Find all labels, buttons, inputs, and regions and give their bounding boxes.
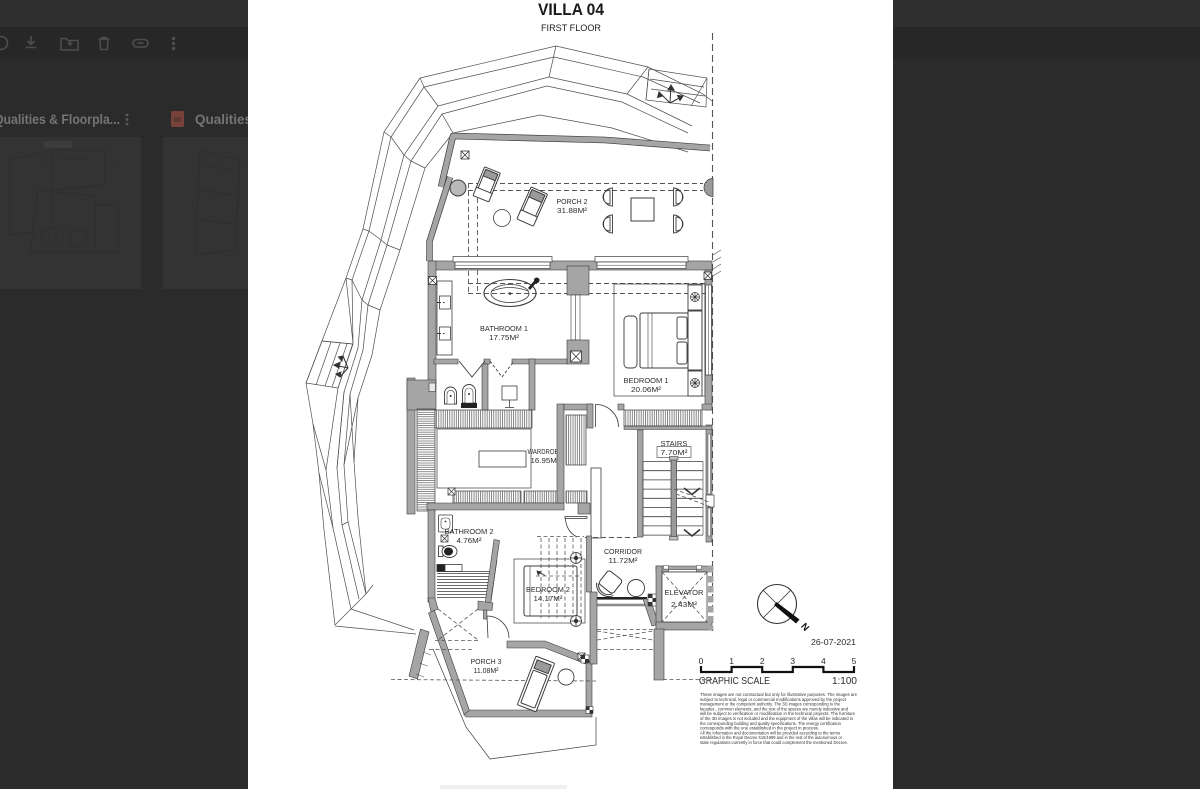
svg-text:7.70M²: 7.70M² <box>661 448 689 457</box>
svg-text:1:100: 1:100 <box>832 676 857 687</box>
svg-text:state regulations currently in: state regulations currently in force tha… <box>700 740 848 745</box>
svg-text:BEDROOM 2: BEDROOM 2 <box>526 585 570 594</box>
svg-text:PORCH 2: PORCH 2 <box>557 197 588 206</box>
svg-text:BEDROOM 1: BEDROOM 1 <box>624 376 669 385</box>
svg-text:26-07-2021: 26-07-2021 <box>811 637 856 647</box>
svg-text:16.95M²: 16.95M² <box>531 456 560 465</box>
svg-text:4.76M²: 4.76M² <box>457 536 482 545</box>
svg-text:17.75M²: 17.75M² <box>489 333 520 342</box>
svg-text:BATHROOM 1: BATHROOM 1 <box>480 324 528 333</box>
svg-text:20.06M²: 20.06M² <box>631 385 662 394</box>
svg-text:GRAPHIC SCALE: GRAPHIC SCALE <box>699 675 770 687</box>
svg-text:Qualities & Floorpla...: Qualities & Floorpla... <box>0 112 120 127</box>
svg-text:ELEVATOR: ELEVATOR <box>665 588 705 597</box>
svg-text:1: 1 <box>729 656 734 666</box>
svg-text:VILLA 04: VILLA 04 <box>538 1 605 19</box>
svg-text:BATHROOM 2: BATHROOM 2 <box>445 527 494 536</box>
svg-text:2.43M²: 2.43M² <box>671 600 698 609</box>
svg-text:PORCH 3: PORCH 3 <box>471 657 502 666</box>
svg-text:5: 5 <box>852 656 857 666</box>
svg-text:CORRIDOR: CORRIDOR <box>604 547 642 556</box>
svg-text:31.88M²: 31.88M² <box>557 206 588 215</box>
svg-text:FIRST FLOOR: FIRST FLOOR <box>541 23 601 34</box>
svg-text:0: 0 <box>699 656 704 666</box>
svg-text:2: 2 <box>760 656 765 666</box>
svg-text:14.17M²: 14.17M² <box>534 594 563 603</box>
svg-text:4: 4 <box>821 656 826 666</box>
svg-text:11.72M²: 11.72M² <box>609 556 638 565</box>
svg-text:11.08M²: 11.08M² <box>474 666 499 675</box>
svg-text:3: 3 <box>790 656 795 666</box>
